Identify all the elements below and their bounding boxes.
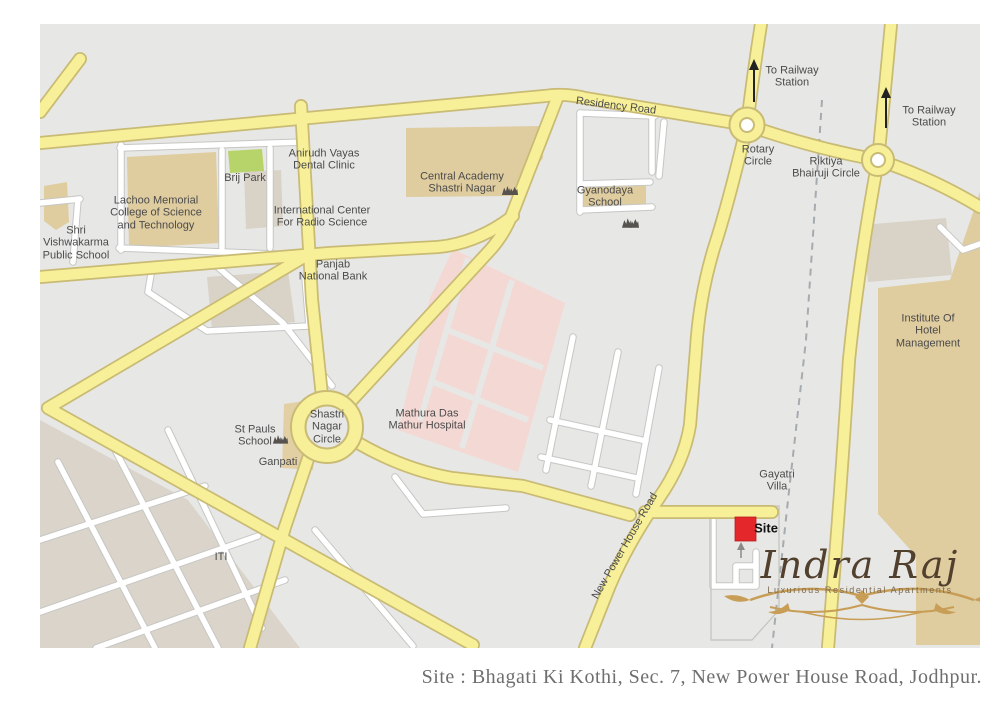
site-red-square [735, 517, 756, 541]
block-vishwakarma [44, 182, 69, 230]
block-taupe-1 [244, 170, 283, 229]
block-brij-park [228, 149, 264, 173]
site-address-caption: Site : Bhagati Ki Kothi, Sec. 7, New Pow… [422, 666, 982, 689]
map-page: Residency Road To Railway Station To Rai… [0, 0, 1000, 703]
block-gyanodaya [582, 186, 646, 206]
block-lachoo-college [127, 152, 219, 248]
logo-name: Indra Raj [761, 543, 960, 587]
map-canvas [0, 0, 1000, 703]
logo-tagline: Luxurious Residential Apartments [767, 585, 952, 595]
